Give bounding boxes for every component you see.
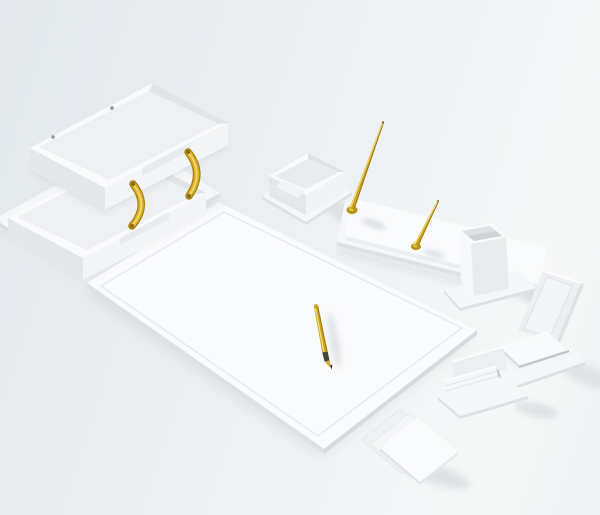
desk-set-photo xyxy=(0,0,600,515)
note-papers xyxy=(362,409,472,494)
desk-set-illustration xyxy=(0,0,600,515)
pen-tip xyxy=(437,200,439,202)
bracket-screw xyxy=(187,194,191,198)
pen-tip xyxy=(382,121,384,123)
bracket-screw xyxy=(186,150,190,154)
pen-shade xyxy=(354,123,384,210)
fountain-pen-cap-end xyxy=(314,304,318,308)
bracket-screw xyxy=(130,224,134,228)
card-holder-shadow xyxy=(513,399,559,422)
bracket-screw xyxy=(131,182,135,186)
screw-hole-center xyxy=(52,136,54,138)
screw-hole-center xyxy=(111,107,113,109)
pen-highlight xyxy=(351,122,383,207)
pencil-cup-face-right xyxy=(471,237,509,296)
